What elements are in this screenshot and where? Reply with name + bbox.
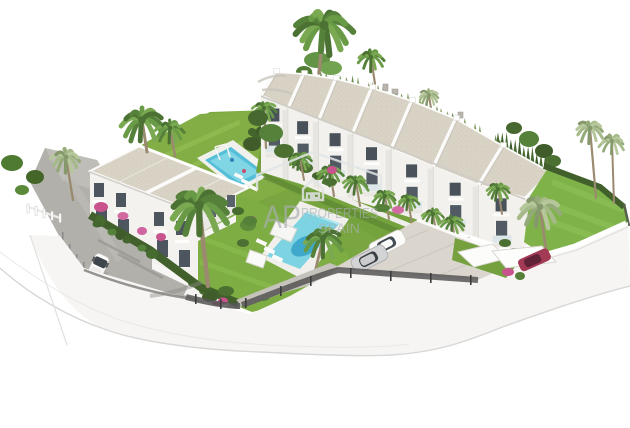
svg-text:SPAIN: SPAIN [318,220,360,236]
svg-text:AP: AP [263,199,301,235]
